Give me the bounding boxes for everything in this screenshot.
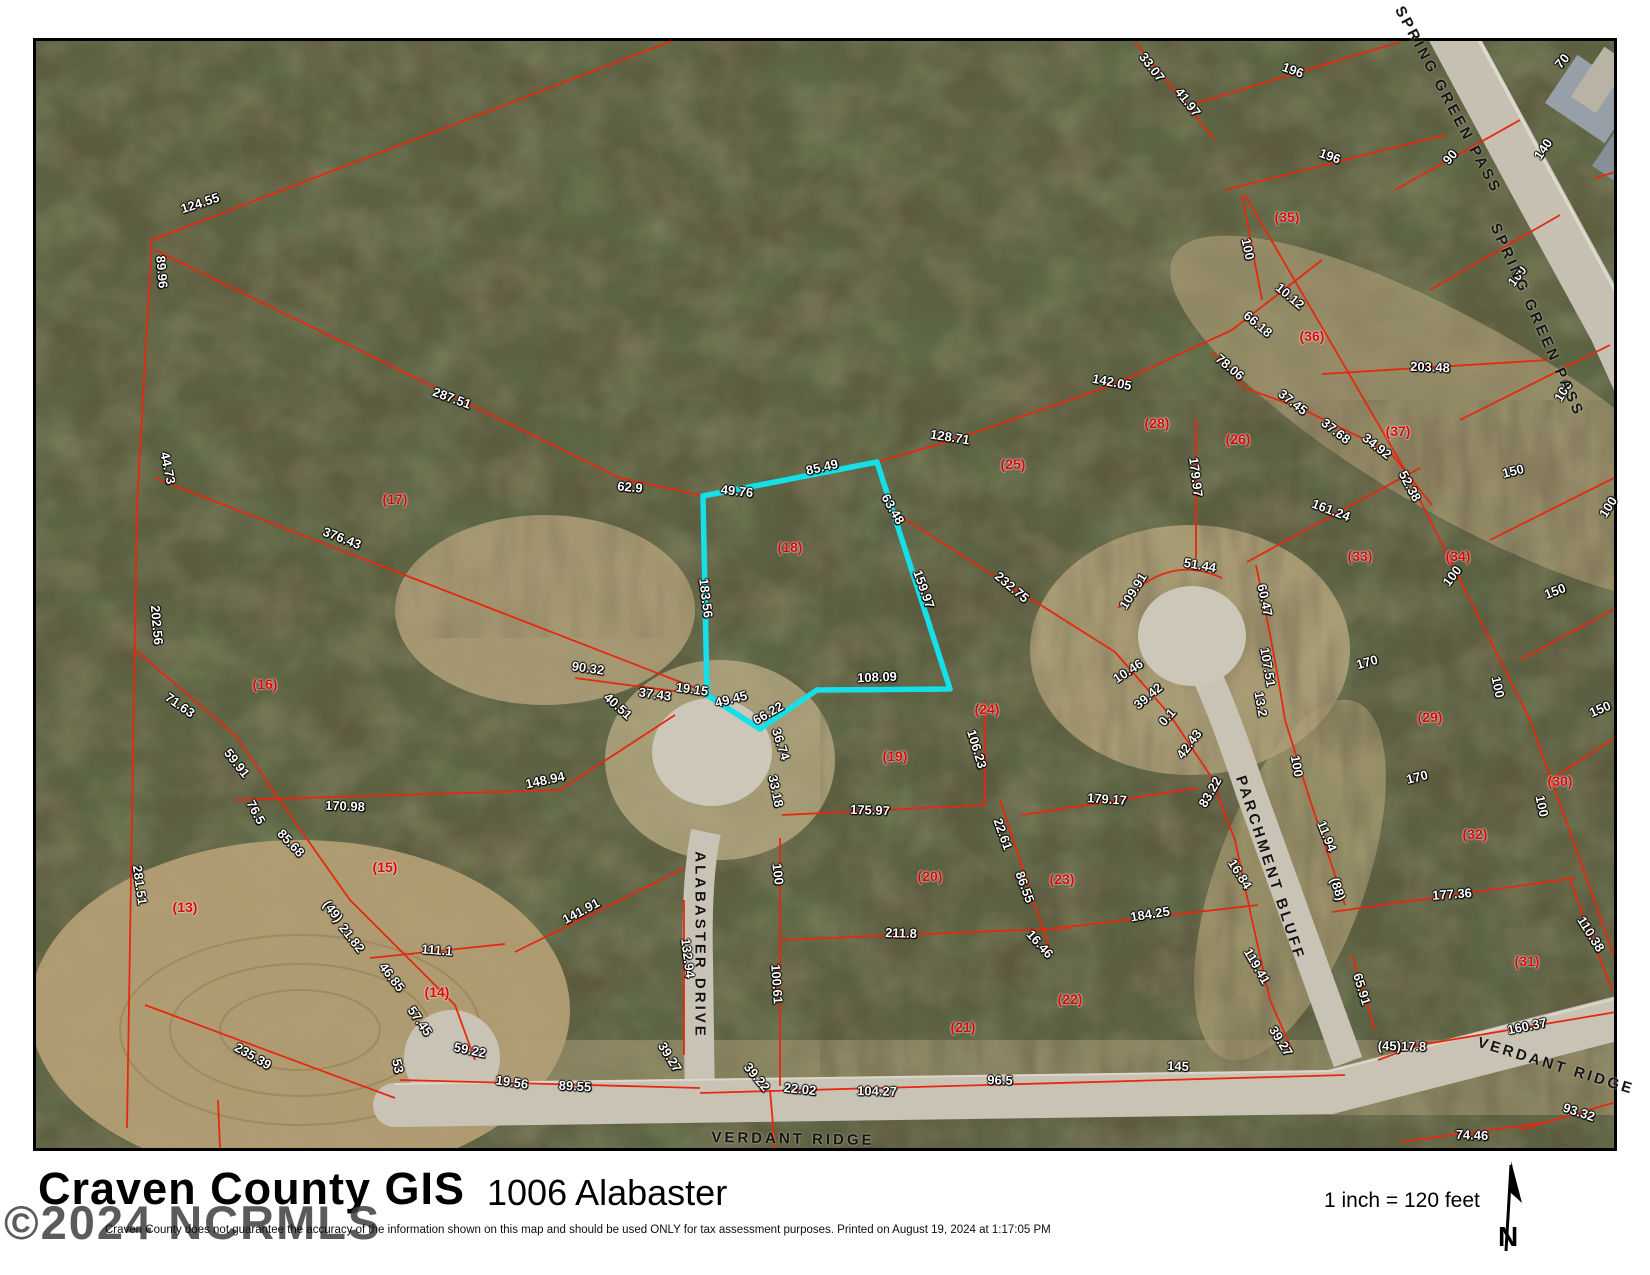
footer: Craven County GIS 1006 Alabaster ©2024 N… — [0, 1151, 1650, 1275]
road-parchment-culdesac — [1138, 586, 1246, 686]
road-verdant-culdesac — [404, 1010, 500, 1106]
road-alabaster-drive — [698, 832, 706, 1110]
disclaimer-text: Craven County does not guarantee the acc… — [105, 1224, 1051, 1236]
field-clearing — [30, 840, 570, 1180]
aerial-imagery — [30, 0, 1650, 1180]
gis-print-page: 124.5589.9644.73202.56281.51287.51376.43… — [0, 0, 1650, 1275]
road-alabaster-culdesac — [652, 698, 772, 806]
north-label: N — [1498, 1221, 1518, 1252]
map-scale-text: 1 inch = 120 feet — [1324, 1189, 1480, 1213]
north-arrow-icon: N — [1480, 1151, 1540, 1271]
mls-watermark: ©2024 NCRMLS — [4, 1195, 381, 1250]
subject-address: 1006 Alabaster — [487, 1172, 727, 1214]
aerial-map-graphics — [0, 0, 1650, 1275]
